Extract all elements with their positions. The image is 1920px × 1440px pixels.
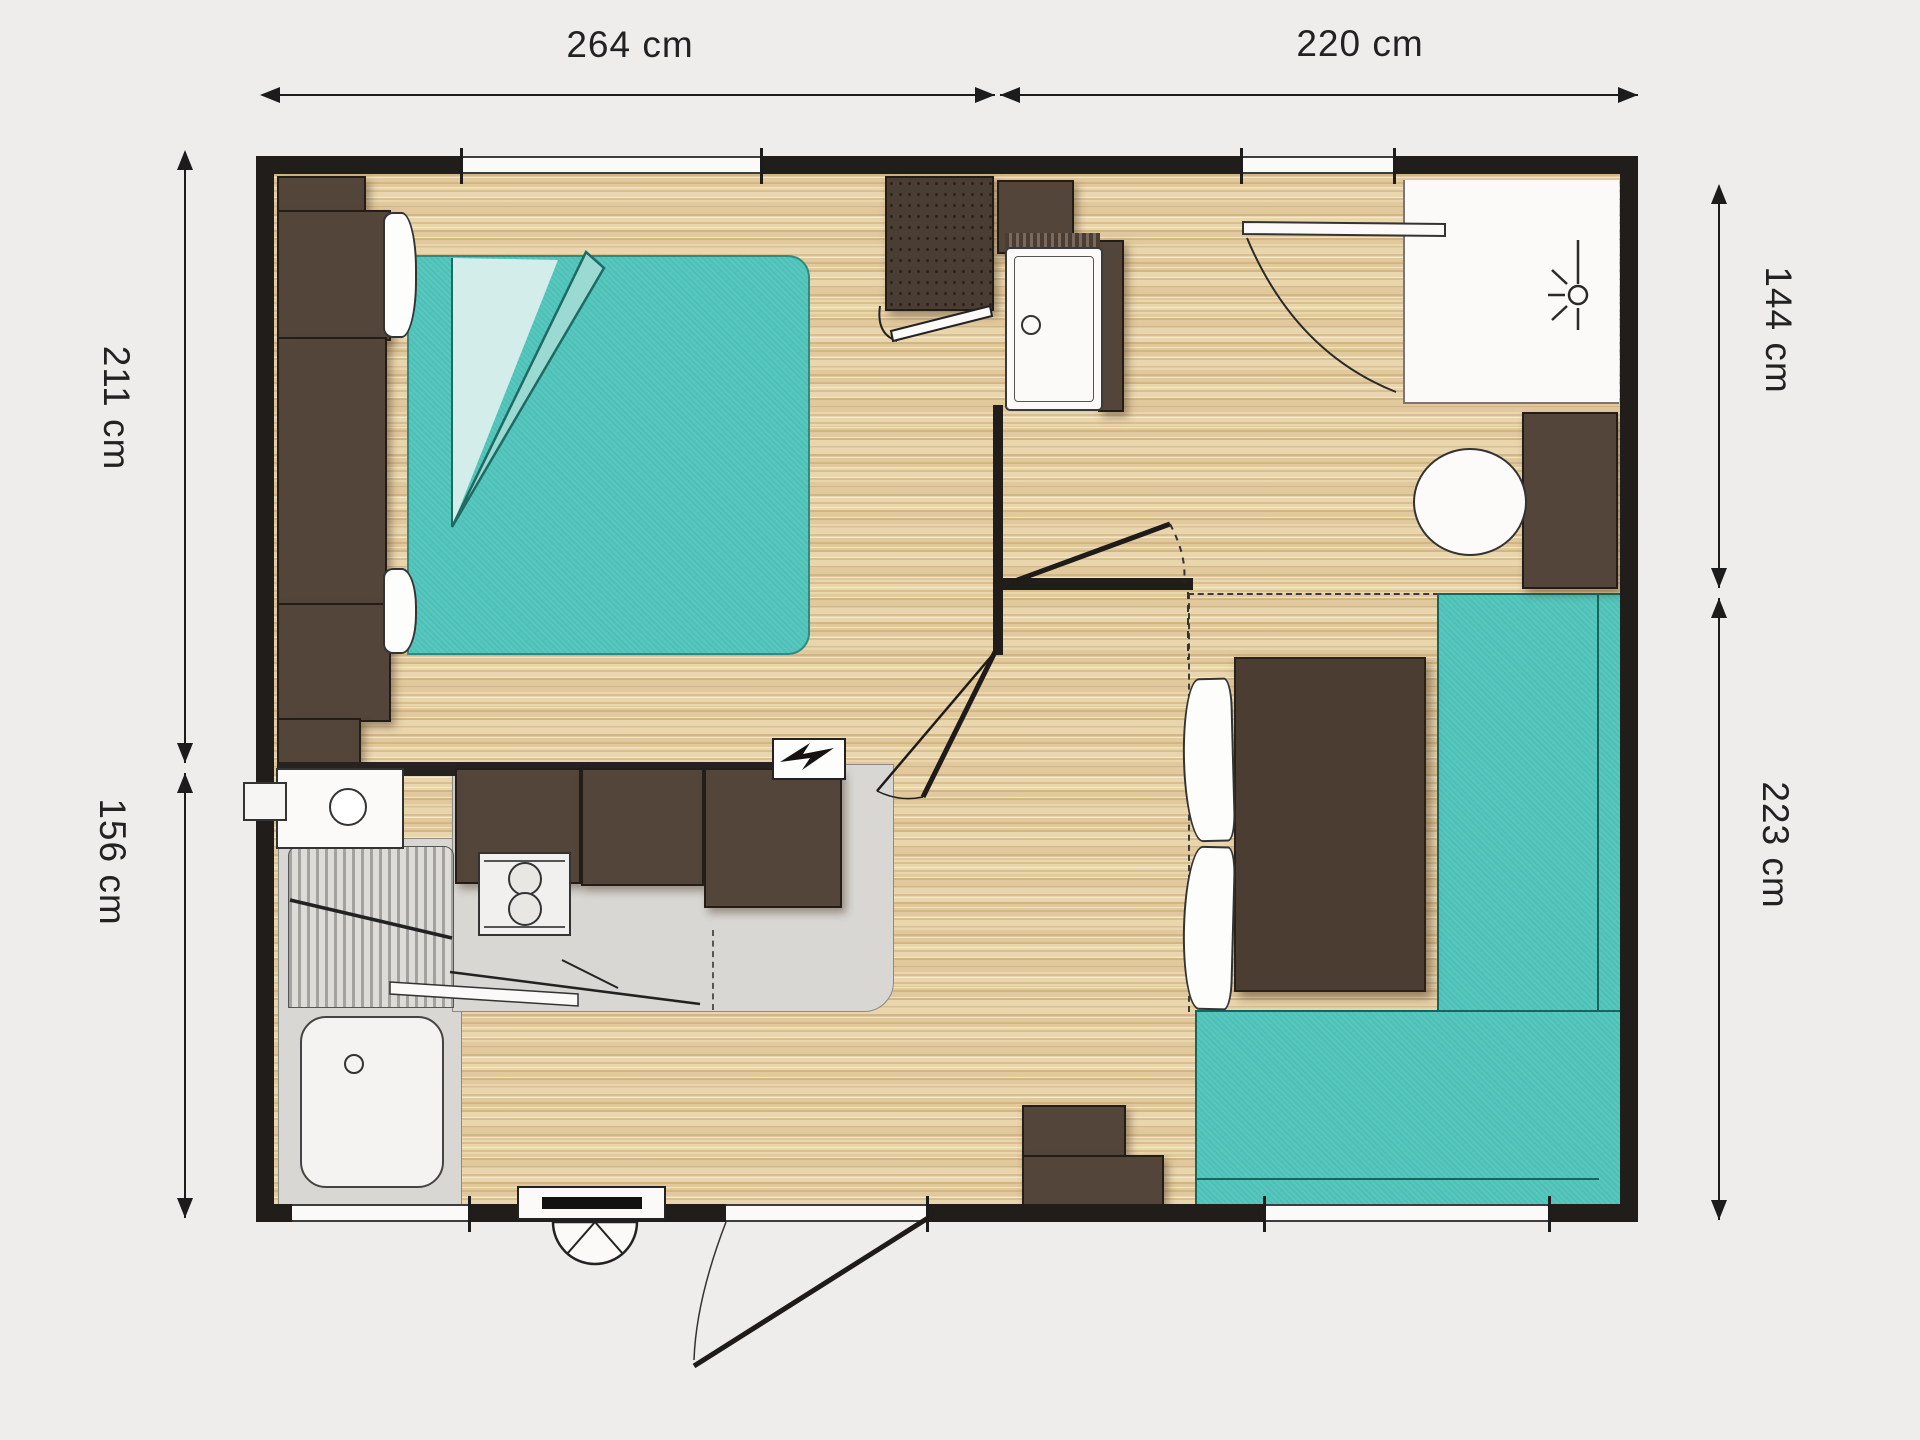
- wall-feedthrough-box: [243, 782, 287, 821]
- dimension-arrow-icon: [177, 743, 193, 763]
- bedroom-dresser-lower: [277, 718, 361, 766]
- dim-line-144: [1718, 186, 1720, 588]
- entry-cabinet-upper: [1022, 1105, 1126, 1159]
- washbasin: [1005, 247, 1103, 411]
- dim-line-223: [1718, 598, 1720, 1220]
- kitchen-sink-drain: [344, 1054, 364, 1074]
- dimension-arrow-icon: [177, 773, 193, 793]
- shower-tray: [1403, 180, 1619, 404]
- bedroom-dresser: [277, 603, 391, 722]
- entry-door-arc: [694, 1222, 726, 1360]
- window-tick: [460, 148, 463, 184]
- entry-step-fan-icon: [553, 1222, 637, 1264]
- hob-burner-1: [508, 862, 542, 896]
- dimension-arrow-icon: [177, 150, 193, 170]
- window-tick: [1548, 1196, 1551, 1232]
- dim-line-211: [184, 152, 186, 763]
- dim-line-156: [184, 773, 186, 1218]
- electric-panel: [772, 738, 846, 780]
- dining-seat-cushion-1: [1181, 677, 1236, 842]
- entry-door-leaf: [694, 1218, 928, 1366]
- dining-bench-bottom: [1195, 1010, 1622, 1206]
- bedroom-cabinet-upper: [277, 210, 391, 341]
- dim-label-top-left: 264 cm: [566, 24, 693, 66]
- bedroom-wardrobe-column: [277, 337, 387, 607]
- wall-left: [256, 156, 274, 1222]
- window-tick: [1393, 148, 1396, 184]
- window-tick: [760, 148, 763, 184]
- kitchen-base-cabinet-3: [704, 768, 842, 908]
- threshold-mat: [542, 1197, 642, 1209]
- toilet-side-cabinet: [1522, 412, 1618, 589]
- dimension-arrow-icon: [260, 87, 280, 103]
- dimension-arrow-icon: [1711, 568, 1727, 588]
- dimension-arrow-icon: [975, 87, 995, 103]
- window-tick: [1240, 148, 1243, 184]
- dim-label-right-bottom: 223 cm: [1754, 781, 1796, 908]
- bench-backrest-line: [1197, 1178, 1599, 1180]
- dimension-arrow-icon: [1711, 1200, 1727, 1220]
- hob-line: [484, 926, 565, 928]
- kitchen-window: [292, 1204, 470, 1222]
- window-tick: [468, 1196, 471, 1232]
- bedroom-cabinet-corner: [277, 176, 366, 212]
- dimension-arrow-icon: [1711, 598, 1727, 618]
- window-tick: [926, 1196, 929, 1232]
- water-heater-unit: [276, 768, 404, 849]
- wall-right: [1620, 156, 1638, 1222]
- dimension-arrow-icon: [1618, 87, 1638, 103]
- bed-pillow-bottom: [383, 568, 417, 654]
- double-bed: [407, 255, 810, 655]
- kitchen-hob: [478, 852, 571, 936]
- hall-wardrobe: [885, 176, 994, 311]
- kitchen-sink: [300, 1016, 444, 1188]
- washbasin-counter-edge: [1005, 233, 1100, 248]
- bathroom-partition-wall: [993, 578, 1193, 590]
- kitchen-draining-board: [288, 846, 454, 1008]
- dining-seat-cushion-2: [1181, 845, 1236, 1010]
- bedroom-window: [462, 156, 762, 174]
- bed-pillow-top: [383, 212, 417, 338]
- dimension-arrow-icon: [1711, 184, 1727, 204]
- kitchen-base-cabinet-2: [581, 768, 704, 886]
- hob-burner-2: [508, 892, 542, 926]
- counter-dashed-edge: [712, 930, 714, 1010]
- window-tick: [1263, 1196, 1266, 1232]
- dimension-arrow-icon: [177, 1198, 193, 1218]
- entry-threshold-step: [517, 1186, 666, 1220]
- dim-line-220: [1000, 94, 1638, 96]
- dimension-arrow-icon: [1000, 87, 1020, 103]
- dim-label-left-top: 211 cm: [95, 346, 137, 471]
- partition-wall-vertical: [993, 405, 1003, 655]
- washbasin-drain: [1021, 315, 1041, 335]
- dining-table: [1234, 657, 1426, 992]
- bathroom-window: [1242, 156, 1395, 174]
- toilet: [1413, 448, 1527, 556]
- dining-window: [1265, 1204, 1550, 1222]
- dim-line-264: [262, 94, 995, 96]
- dim-label-top-right: 220 cm: [1296, 23, 1423, 65]
- entry-door-opening: [726, 1204, 928, 1222]
- dim-label-right-top: 144 cm: [1757, 266, 1799, 393]
- lightning-bolt-icon: [774, 740, 840, 774]
- dim-label-left-bottom: 156 cm: [91, 798, 133, 925]
- entry-cabinet-lower: [1022, 1155, 1164, 1208]
- heater-dial: [329, 788, 367, 826]
